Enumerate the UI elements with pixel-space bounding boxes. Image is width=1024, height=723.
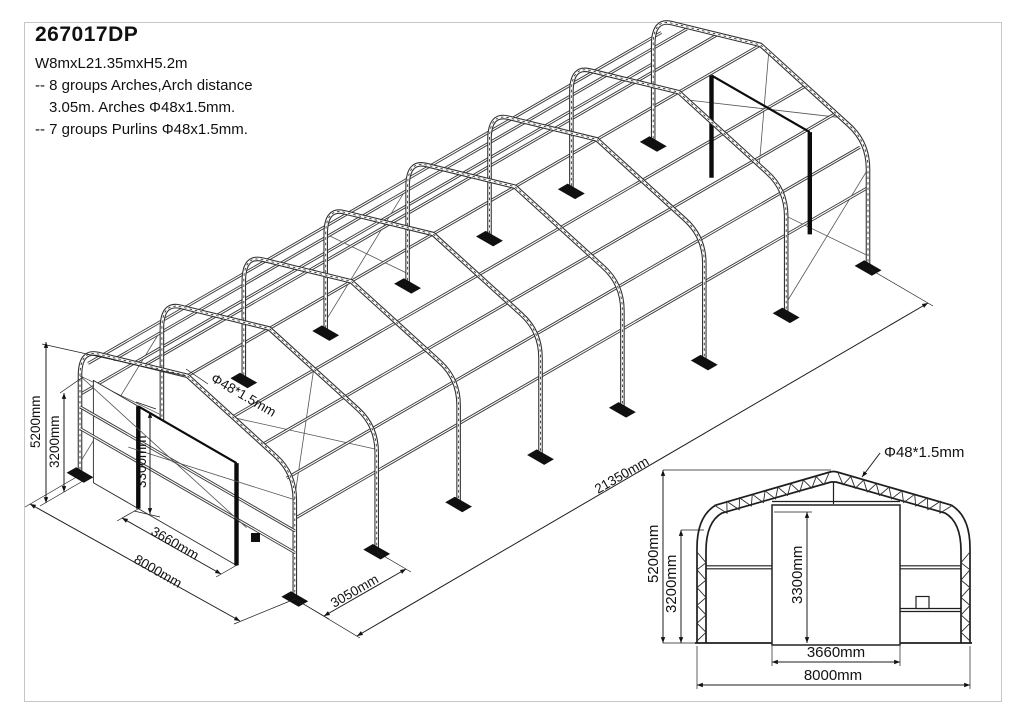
foot-pad	[527, 449, 554, 465]
front-elevation-view: 5200mm 3200mm 3300mm 3660mm 8000mm Φ48*1…	[645, 444, 972, 689]
drawing-sheet: 267017DP W8mxL21.35mxH5.2m -- 8 groups A…	[0, 0, 1024, 723]
front-dim-total-height-label: 5200mm	[645, 525, 662, 583]
isometric-view	[67, 22, 882, 606]
foot-pad	[640, 136, 667, 152]
foot-pad	[558, 184, 585, 200]
foot-pad	[691, 355, 718, 371]
rail-box-detail-iso	[251, 533, 260, 542]
iso-dim-width-label: 8000mm	[132, 552, 185, 591]
foot-pad	[312, 325, 339, 341]
iso-dim-wall-height-label: 3200mm	[47, 415, 62, 468]
rail-box-detail	[916, 597, 929, 609]
iso-dim-total-height-label: 5200mm	[28, 395, 43, 448]
foot-pad	[394, 278, 421, 293]
front-dim-wall-height-label: 3200mm	[663, 555, 680, 613]
iso-dim-length-label: 21350mm	[592, 454, 652, 497]
end-wall-panel	[93, 380, 138, 508]
front-tube-spec-label: Φ48*1.5mm	[884, 444, 964, 461]
technical-drawing-svg: 5200mm 3200mm 3300mm 3660mm 8000mm 3050m…	[0, 0, 1024, 723]
front-dim-door-width-label: 3660mm	[807, 644, 865, 661]
iso-dim-door-height-label: 3300mm	[134, 435, 149, 488]
foot-pad	[609, 402, 636, 418]
front-dim-width-label: 8000mm	[804, 667, 862, 684]
foot-pad	[476, 231, 503, 247]
foot-pad	[445, 497, 472, 513]
foot-pad	[773, 308, 800, 324]
front-dim-door-height-label: 3300mm	[789, 546, 806, 604]
iso-dim-bay-spacing-label: 3050mm	[328, 571, 381, 610]
